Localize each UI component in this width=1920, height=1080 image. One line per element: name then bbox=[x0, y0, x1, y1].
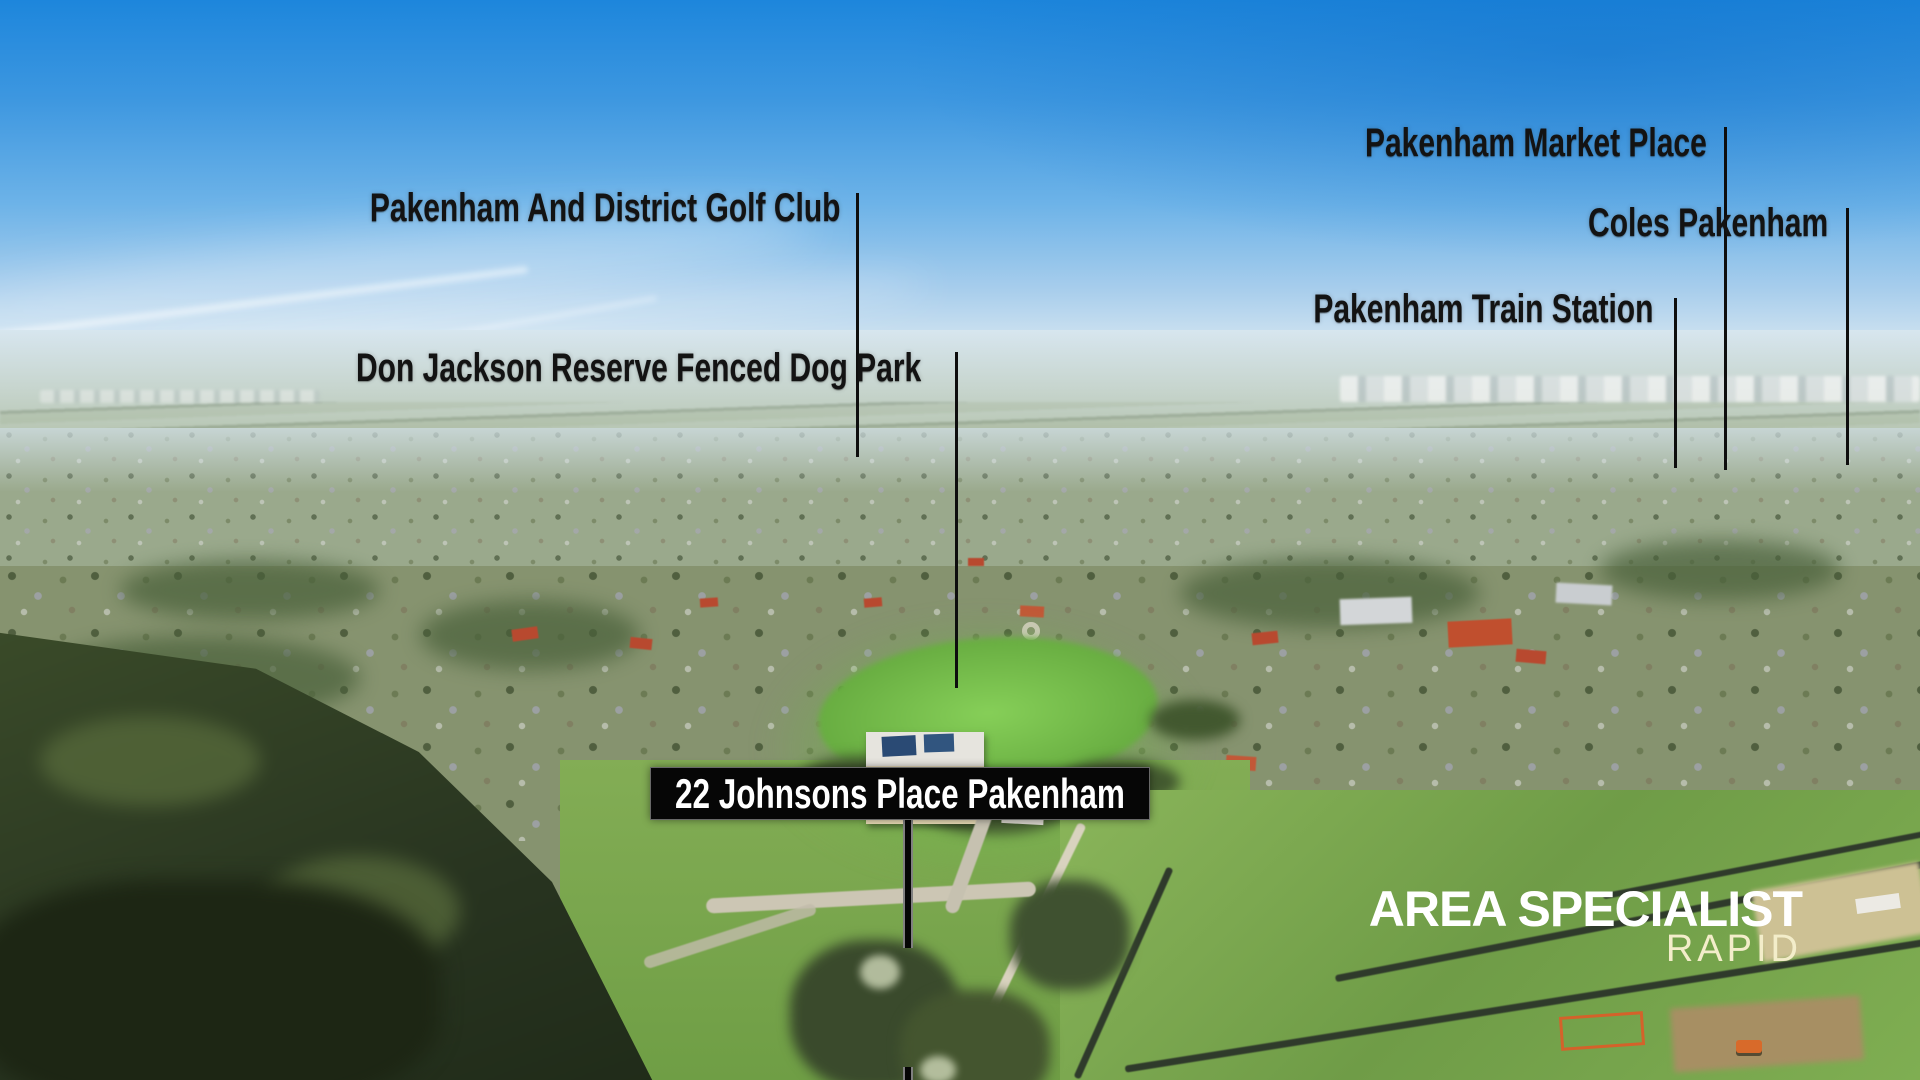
tree-ring bbox=[1150, 700, 1240, 740]
red-roof bbox=[700, 597, 719, 607]
tree-cluster bbox=[1180, 558, 1480, 628]
red-roof bbox=[1447, 618, 1512, 647]
dirt-patch bbox=[1670, 995, 1864, 1072]
property-pointer-line bbox=[903, 820, 913, 948]
orange-trailer-frame bbox=[1559, 1011, 1645, 1051]
atmospheric-haze bbox=[0, 428, 1920, 492]
label-coles: Coles Pakenham bbox=[1508, 201, 1828, 246]
agency-watermark: AREA SPECIALIST RAPID bbox=[1369, 884, 1802, 968]
solar-panels bbox=[924, 733, 955, 752]
red-roof bbox=[1515, 649, 1546, 665]
tree-cluster bbox=[120, 560, 380, 620]
label-text: Pakenham Train Station bbox=[1313, 287, 1653, 332]
red-roof bbox=[968, 558, 984, 566]
pointer-line-coles bbox=[1846, 208, 1849, 465]
forest-blotch bbox=[40, 716, 260, 806]
red-roof bbox=[864, 597, 883, 608]
solar-panels bbox=[881, 735, 916, 757]
aerial-photo: Pakenham And District Golf Club Don Jack… bbox=[0, 0, 1920, 1080]
ride-on-mower bbox=[1736, 1040, 1762, 1053]
label-text: Pakenham And District Golf Club bbox=[369, 186, 840, 231]
red-roof bbox=[629, 637, 652, 650]
industrial-buildings bbox=[1340, 376, 1920, 402]
label-text: Coles Pakenham bbox=[1588, 201, 1828, 246]
label-text: Don Jackson Reserve Fenced Dog Park bbox=[356, 346, 921, 391]
property-address-banner: 22 Johnsons Place Pakenham bbox=[650, 767, 1150, 820]
industrial-buildings bbox=[40, 390, 320, 403]
pointer-line-train-station bbox=[1674, 298, 1677, 468]
blossom-tree bbox=[920, 1056, 956, 1080]
property-address-text: 22 Johnsons Place Pakenham bbox=[675, 770, 1125, 818]
property-pointer-line-stub bbox=[903, 1067, 913, 1080]
label-dog-park: Don Jackson Reserve Fenced Dog Park bbox=[356, 346, 1110, 391]
pointer-line-golf-club bbox=[856, 193, 859, 457]
tree-cluster bbox=[1600, 540, 1840, 600]
warehouse-roof bbox=[1340, 597, 1413, 625]
warehouse-roof bbox=[1556, 583, 1613, 606]
pointer-line-market-place bbox=[1724, 127, 1727, 470]
label-text: Pakenham Market Place bbox=[1365, 121, 1707, 166]
pointer-line-dog-park bbox=[955, 352, 958, 688]
agency-name: AREA SPECIALIST bbox=[1369, 884, 1802, 934]
label-train-station: Pakenham Train Station bbox=[1200, 287, 1653, 332]
forest-shadow bbox=[0, 880, 440, 1080]
blossom-tree bbox=[860, 955, 900, 989]
label-market-place: Pakenham Market Place bbox=[1251, 121, 1707, 166]
label-golf-club: Pakenham And District Golf Club bbox=[213, 186, 840, 231]
